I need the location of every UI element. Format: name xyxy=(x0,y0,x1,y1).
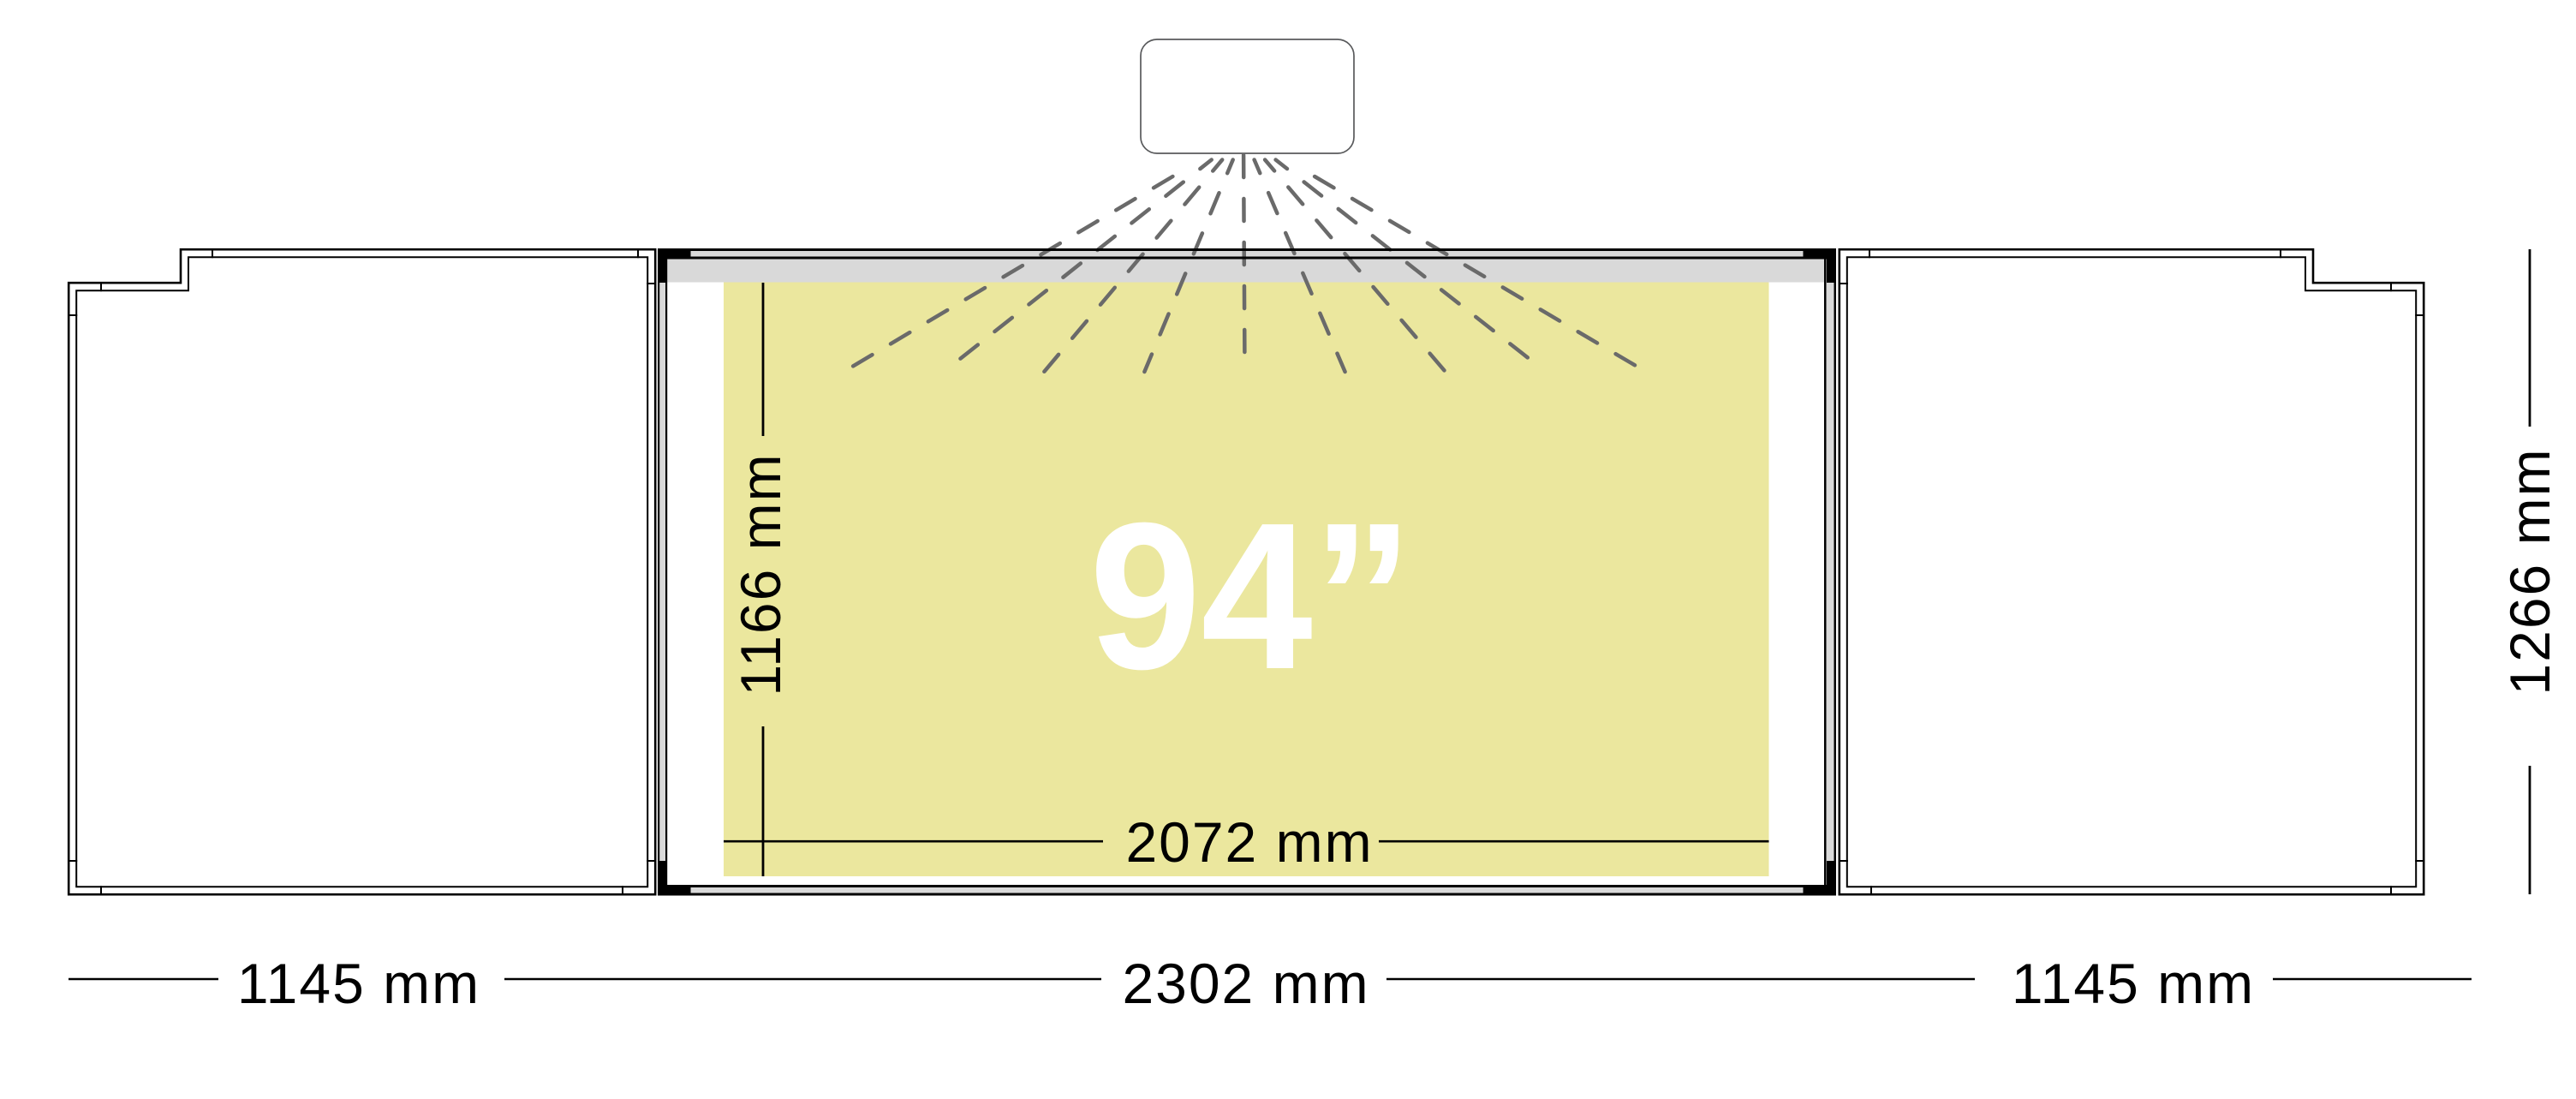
svg-text:2302 mm: 2302 mm xyxy=(1122,952,1369,1015)
svg-text:94”: 94” xyxy=(1089,479,1413,713)
svg-text:1145 mm: 1145 mm xyxy=(237,952,480,1015)
svg-text:1145 mm: 1145 mm xyxy=(2012,952,2255,1015)
svg-text:1166 mm: 1166 mm xyxy=(729,452,792,696)
svg-text:2072 mm: 2072 mm xyxy=(1125,810,1373,874)
svg-text:1266 mm: 1266 mm xyxy=(2498,447,2561,695)
